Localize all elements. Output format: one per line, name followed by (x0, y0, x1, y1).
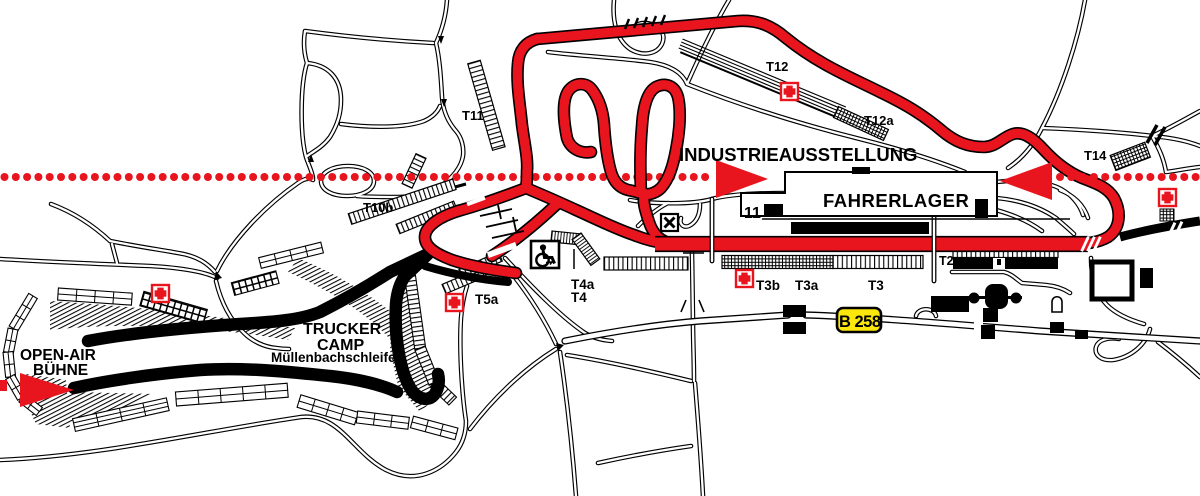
svg-text:T10b: T10b (363, 200, 393, 215)
svg-text:B 258: B 258 (839, 313, 881, 331)
svg-text:TRUCKER: TRUCKER (303, 321, 382, 338)
svg-text:T5a: T5a (475, 292, 499, 307)
svg-text:T4: T4 (571, 290, 587, 305)
svg-text:T3: T3 (868, 278, 884, 293)
svg-text:T3b: T3b (756, 278, 780, 293)
svg-text:T3a: T3a (795, 278, 819, 293)
svg-text:T2: T2 (939, 254, 954, 268)
svg-text:INDUSTRIEAUSSTELLUNG: INDUSTRIEAUSSTELLUNG (679, 144, 917, 165)
svg-text:T12a: T12a (864, 113, 894, 128)
svg-text:T14: T14 (1084, 148, 1107, 163)
svg-text:BÜHNE: BÜHNE (33, 362, 88, 379)
svg-text:T12: T12 (766, 59, 788, 74)
svg-text:T11: T11 (462, 108, 484, 123)
svg-text:11: 11 (744, 205, 761, 222)
svg-text:FAHRERLAGER: FAHRERLAGER (823, 190, 969, 211)
svg-text:Müllenbachschleife: Müllenbachschleife (271, 350, 396, 365)
